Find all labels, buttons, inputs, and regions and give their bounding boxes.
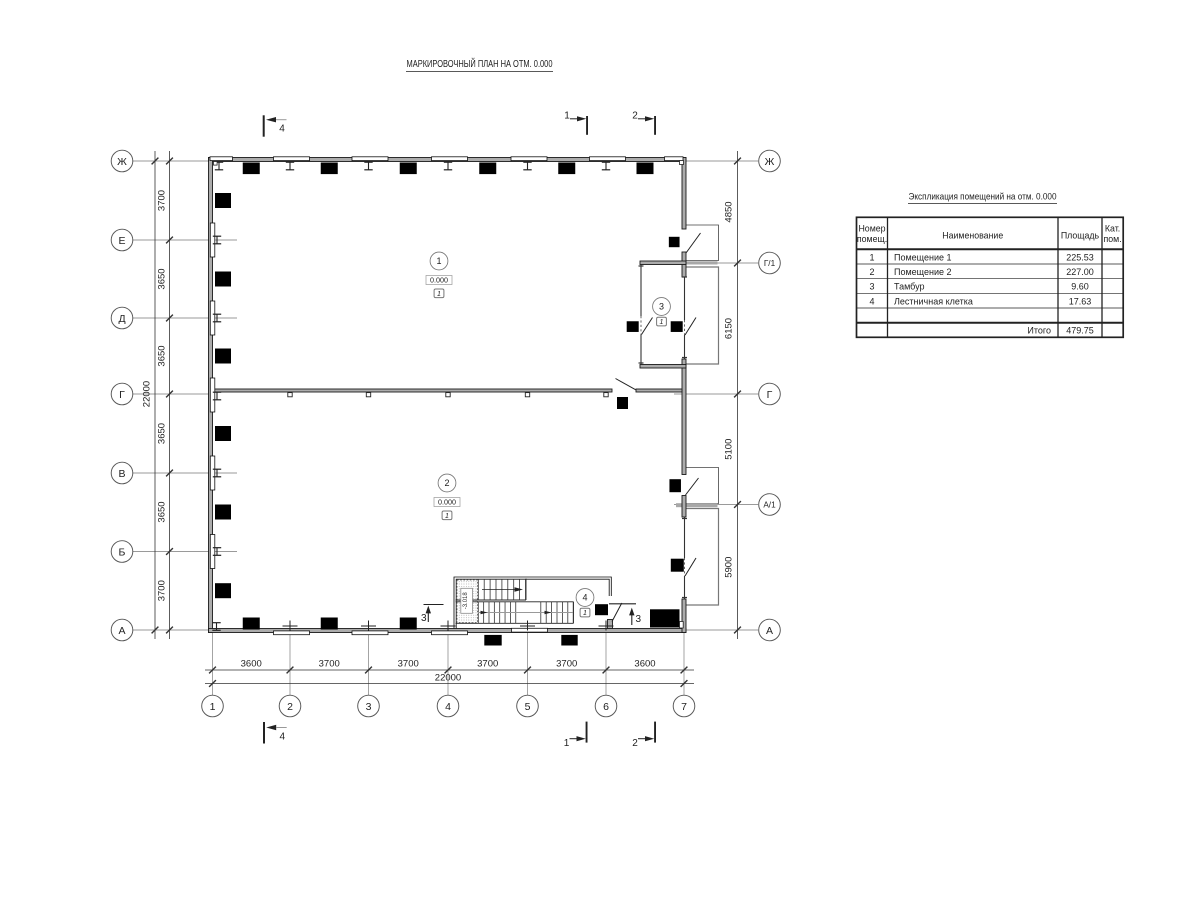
svg-text:3650: 3650 [157, 501, 168, 522]
svg-text:3700: 3700 [398, 659, 419, 670]
svg-text:3: 3 [636, 614, 642, 625]
svg-text:3: 3 [869, 282, 874, 292]
svg-text:7: 7 [681, 701, 687, 713]
svg-text:5: 5 [525, 701, 531, 713]
svg-text:Итого: Итого [1027, 326, 1051, 336]
svg-text:помещ.: помещ. [857, 234, 887, 244]
svg-text:3: 3 [659, 302, 664, 312]
svg-text:227.00: 227.00 [1066, 267, 1094, 277]
svg-text:Помещение 1: Помещение 1 [894, 252, 952, 262]
svg-text:3600: 3600 [241, 659, 262, 670]
svg-text:3700: 3700 [319, 659, 340, 670]
svg-text:Номер: Номер [858, 224, 885, 234]
svg-text:3700: 3700 [556, 659, 577, 670]
svg-text:Тамбур: Тамбур [894, 282, 925, 292]
svg-text:Лестничная клетка: Лестничная клетка [894, 296, 973, 306]
svg-text:-3.018: -3.018 [463, 592, 469, 610]
svg-text:4: 4 [445, 701, 451, 713]
svg-text:0.000: 0.000 [438, 498, 456, 507]
svg-text:1: 1 [437, 291, 441, 298]
svg-text:3650: 3650 [157, 268, 168, 289]
svg-text:22000: 22000 [435, 673, 461, 684]
svg-text:Помещение 2: Помещение 2 [894, 267, 952, 277]
svg-text:3650: 3650 [157, 345, 168, 366]
svg-text:4: 4 [280, 731, 286, 742]
svg-text:6150: 6150 [724, 318, 735, 339]
svg-text:В: В [118, 468, 125, 480]
svg-text:Д: Д [118, 313, 125, 325]
svg-text:А: А [118, 625, 125, 637]
svg-text:1: 1 [564, 111, 570, 122]
svg-text:3600: 3600 [634, 659, 655, 670]
svg-text:6: 6 [603, 701, 609, 713]
svg-text:Е: Е [118, 235, 125, 247]
svg-text:4: 4 [869, 296, 874, 306]
svg-text:225.53: 225.53 [1066, 252, 1094, 262]
svg-text:Ж: Ж [765, 156, 775, 168]
svg-text:2: 2 [632, 738, 638, 749]
svg-text:А: А [766, 625, 773, 637]
svg-text:Г: Г [767, 389, 773, 401]
svg-text:Экспликация помещений на отм.: Экспликация помещений на отм. 0.000 [909, 192, 1057, 203]
svg-text:17.63: 17.63 [1069, 296, 1092, 306]
svg-text:3700: 3700 [477, 659, 498, 670]
svg-text:4: 4 [279, 124, 285, 135]
svg-text:4: 4 [582, 593, 587, 603]
svg-text:1: 1 [445, 513, 449, 520]
svg-text:3650: 3650 [157, 423, 168, 444]
svg-text:3700: 3700 [157, 580, 168, 601]
svg-text:1: 1 [210, 701, 216, 713]
svg-text:9.60: 9.60 [1071, 282, 1089, 292]
svg-text:3: 3 [421, 613, 427, 624]
svg-text:5900: 5900 [724, 557, 735, 578]
svg-text:3700: 3700 [157, 190, 168, 211]
svg-text:Г: Г [119, 389, 125, 401]
svg-text:Г/1: Г/1 [764, 259, 776, 268]
svg-text:1: 1 [869, 252, 874, 262]
svg-text:22000: 22000 [142, 381, 153, 407]
svg-text:5100: 5100 [724, 439, 735, 460]
svg-text:479.75: 479.75 [1066, 326, 1094, 336]
svg-text:2: 2 [287, 701, 293, 713]
svg-text:пом.: пом. [1104, 234, 1122, 244]
svg-text:1: 1 [583, 610, 587, 617]
svg-text:1: 1 [564, 738, 570, 749]
svg-text:2: 2 [869, 267, 874, 277]
svg-text:3: 3 [366, 701, 372, 713]
svg-text:Кат.: Кат. [1105, 224, 1120, 234]
svg-text:Площадь: Площадь [1061, 231, 1100, 241]
svg-text:1: 1 [436, 256, 441, 266]
svg-text:Наименование: Наименование [942, 231, 1003, 241]
svg-text:1: 1 [660, 319, 664, 326]
svg-text:А/1: А/1 [763, 501, 776, 510]
svg-text:МАРКИРОВОЧНЫЙ ПЛАН НА ОТМ. 0.0: МАРКИРОВОЧНЫЙ ПЛАН НА ОТМ. 0.000 [407, 57, 553, 70]
svg-text:2: 2 [632, 111, 638, 122]
svg-text:4850: 4850 [724, 201, 735, 222]
svg-text:0.000: 0.000 [430, 276, 448, 285]
svg-text:Б: Б [119, 546, 126, 558]
svg-text:Ж: Ж [117, 156, 127, 168]
svg-text:2: 2 [444, 478, 449, 488]
